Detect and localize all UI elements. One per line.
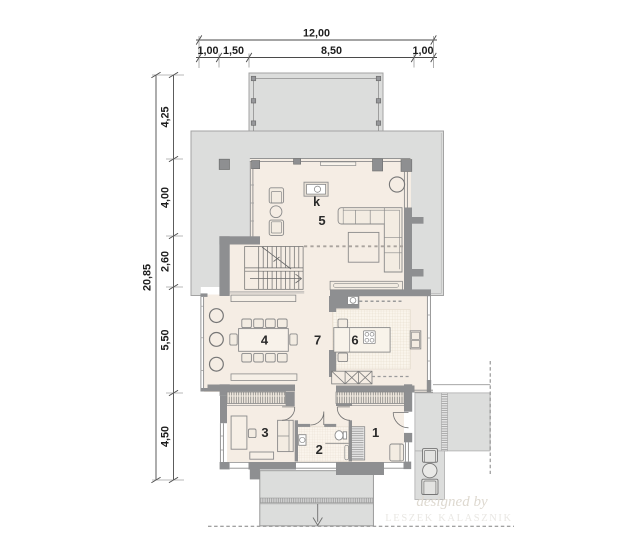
svg-text:7: 7: [314, 333, 321, 348]
svg-text:12,00: 12,00: [303, 28, 330, 40]
svg-text:4,25: 4,25: [160, 106, 172, 127]
svg-text:designed by: designed by: [416, 494, 488, 510]
svg-text:4,50: 4,50: [160, 426, 172, 447]
svg-text:4,00: 4,00: [160, 187, 172, 208]
svg-text:1,00: 1,00: [197, 45, 218, 57]
svg-text:LESZEK KALASZNIK: LESZEK KALASZNIK: [385, 513, 512, 524]
svg-text:2,60: 2,60: [160, 251, 172, 272]
svg-text:5,50: 5,50: [160, 329, 172, 350]
svg-text:2: 2: [316, 442, 323, 457]
svg-text:4: 4: [261, 333, 269, 348]
svg-text:5: 5: [318, 213, 325, 228]
svg-text:1,00: 1,00: [412, 45, 433, 57]
svg-text:8,50: 8,50: [321, 45, 342, 57]
svg-text:20,85: 20,85: [142, 264, 154, 291]
svg-text:1: 1: [372, 425, 379, 440]
svg-text:1,50: 1,50: [223, 45, 244, 57]
svg-text:6: 6: [351, 333, 358, 348]
svg-text:k: k: [313, 195, 320, 209]
svg-text:3: 3: [261, 425, 268, 440]
